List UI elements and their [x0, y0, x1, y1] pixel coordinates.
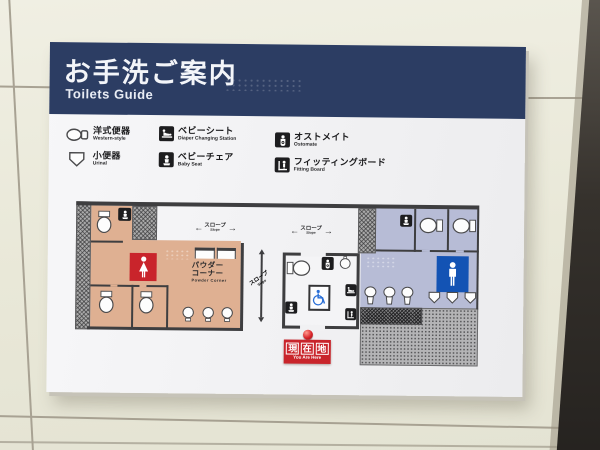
door-gap — [301, 251, 326, 257]
baby-seat-icon — [285, 301, 297, 313]
toilet-icon — [286, 258, 312, 277]
urinal-icon — [463, 290, 477, 305]
legend-label-en: Fitting Board — [294, 168, 386, 174]
legend-item-fitting-board: フィッティングボードFitting Board — [275, 157, 386, 173]
hatch-strip-below-urinals — [360, 307, 422, 325]
diaper-changing-icon — [159, 126, 174, 141]
hatch-zone-womens — [132, 206, 157, 240]
legend-label-en: Ostomate — [294, 143, 350, 149]
tile-grout-line — [8, 0, 35, 450]
braille-dots — [366, 256, 396, 268]
legend-item-baby-seat: ベビーチェアBaby Seat — [159, 152, 234, 168]
hatch-zone-mens — [358, 208, 376, 253]
slope-label: ← スロープSlope → — [186, 220, 244, 235]
sign-title-japanese: お手洗ご案内 — [64, 50, 238, 91]
braille-dots — [224, 78, 302, 92]
stool-icon — [201, 307, 215, 324]
floor-map: パウダー コーナー Powder Corner ← スロープSlope → ← — [68, 196, 494, 382]
you-are-here-char: 現 — [286, 343, 299, 355]
baby-seat-icon — [400, 215, 412, 227]
mens-room-sign — [436, 256, 468, 292]
arrow-up-icon — [258, 249, 264, 254]
you-are-here-badge: 現 在 地 You Are Here — [284, 339, 331, 363]
toilet-icon — [418, 216, 444, 235]
toilet-icon — [95, 209, 113, 234]
female-pictogram — [134, 255, 152, 279]
wheelchair-accessible-icon — [308, 285, 330, 311]
stall-door-gap — [139, 285, 146, 287]
urinal-icon — [400, 286, 414, 307]
baby-seat-icon — [118, 208, 131, 221]
powder-corner-label: パウダー コーナー Powder Corner — [191, 261, 241, 282]
legend-item-ostomate: オストメイトOstomate — [275, 132, 350, 148]
stall-wall — [91, 240, 123, 242]
fitting-board-icon — [345, 308, 356, 320]
legend-label-en: Urinal — [93, 161, 121, 166]
urinal-icon — [445, 290, 459, 305]
arrow-right-icon: → — [324, 226, 332, 235]
legend-label-en: Baby Seat — [178, 162, 234, 168]
slope-en: Slope — [210, 229, 220, 233]
arrow-left-icon: ← — [194, 223, 202, 232]
stall-door-gap — [110, 285, 117, 287]
fitting-board-icon — [275, 157, 290, 172]
sign-title-english: Toilets Guide — [65, 86, 153, 102]
sink-icon — [339, 256, 352, 269]
braille-dots — [165, 249, 191, 259]
womens-room-sign — [130, 253, 157, 281]
male-pictogram — [442, 260, 462, 288]
urinal-icon — [382, 285, 396, 306]
toilet-icon — [451, 216, 477, 235]
stool-icon — [181, 306, 195, 323]
urinal-icon — [363, 285, 377, 306]
stall-door-gap — [422, 250, 430, 252]
legend-item-western-style: 洋式便器Western-style — [65, 126, 130, 143]
slope-label: ← スロープSlope → — [280, 223, 342, 238]
sign-header: お手洗ご案内 Toilets Guide — [49, 42, 526, 119]
you-are-here-char: 地 — [315, 343, 328, 355]
stool-icon — [220, 307, 234, 324]
western-toilet-icon — [65, 126, 89, 142]
toilet-icon — [137, 290, 155, 315]
toilet-icon — [97, 290, 115, 315]
tile-grout-line — [0, 441, 600, 448]
powder-label-jp: コーナー — [192, 269, 242, 277]
legend-label-en: Diaper Changing Station — [178, 136, 236, 142]
hatch-zone-left — [75, 201, 91, 329]
arrow-left-icon: ← — [290, 226, 298, 235]
you-are-here-jp: 現 在 地 — [286, 343, 328, 355]
you-are-here-char: 在 — [301, 343, 314, 355]
ostomate-icon — [275, 132, 290, 147]
arrow-down-icon — [258, 317, 264, 322]
legend-label-jp: 小便器 — [93, 151, 121, 160]
legend-item-urinal: 小便器Urinal — [65, 151, 121, 168]
powder-label-en: Powder Corner — [191, 278, 241, 283]
tile-grout-line — [0, 415, 600, 430]
ostomate-icon — [322, 257, 334, 270]
you-are-here-en: You Are Here — [293, 356, 321, 361]
baby-seat-icon — [159, 152, 174, 167]
legend-label-jp: 洋式便器 — [93, 126, 130, 135]
stall-door-gap — [456, 250, 464, 252]
legend-item-diaper-changing: ベビーシートDiaper Changing Station — [159, 126, 236, 142]
tiled-wall-photo: お手洗ご案内 Toilets Guide 洋式便器Western-style 小… — [0, 0, 600, 450]
arrow-right-icon: → — [228, 223, 236, 232]
urinal-icon — [65, 151, 89, 167]
diaper-changing-icon — [345, 284, 356, 296]
you-are-here-pin — [303, 330, 313, 340]
mirror — [217, 248, 236, 259]
urinal-icon — [427, 290, 441, 305]
mirror — [195, 248, 215, 259]
legend-label-en: Western-style — [93, 136, 130, 141]
slope-en: Slope — [306, 232, 316, 236]
toilets-guide-sign: お手洗ご案内 Toilets Guide 洋式便器Western-style 小… — [46, 42, 526, 397]
